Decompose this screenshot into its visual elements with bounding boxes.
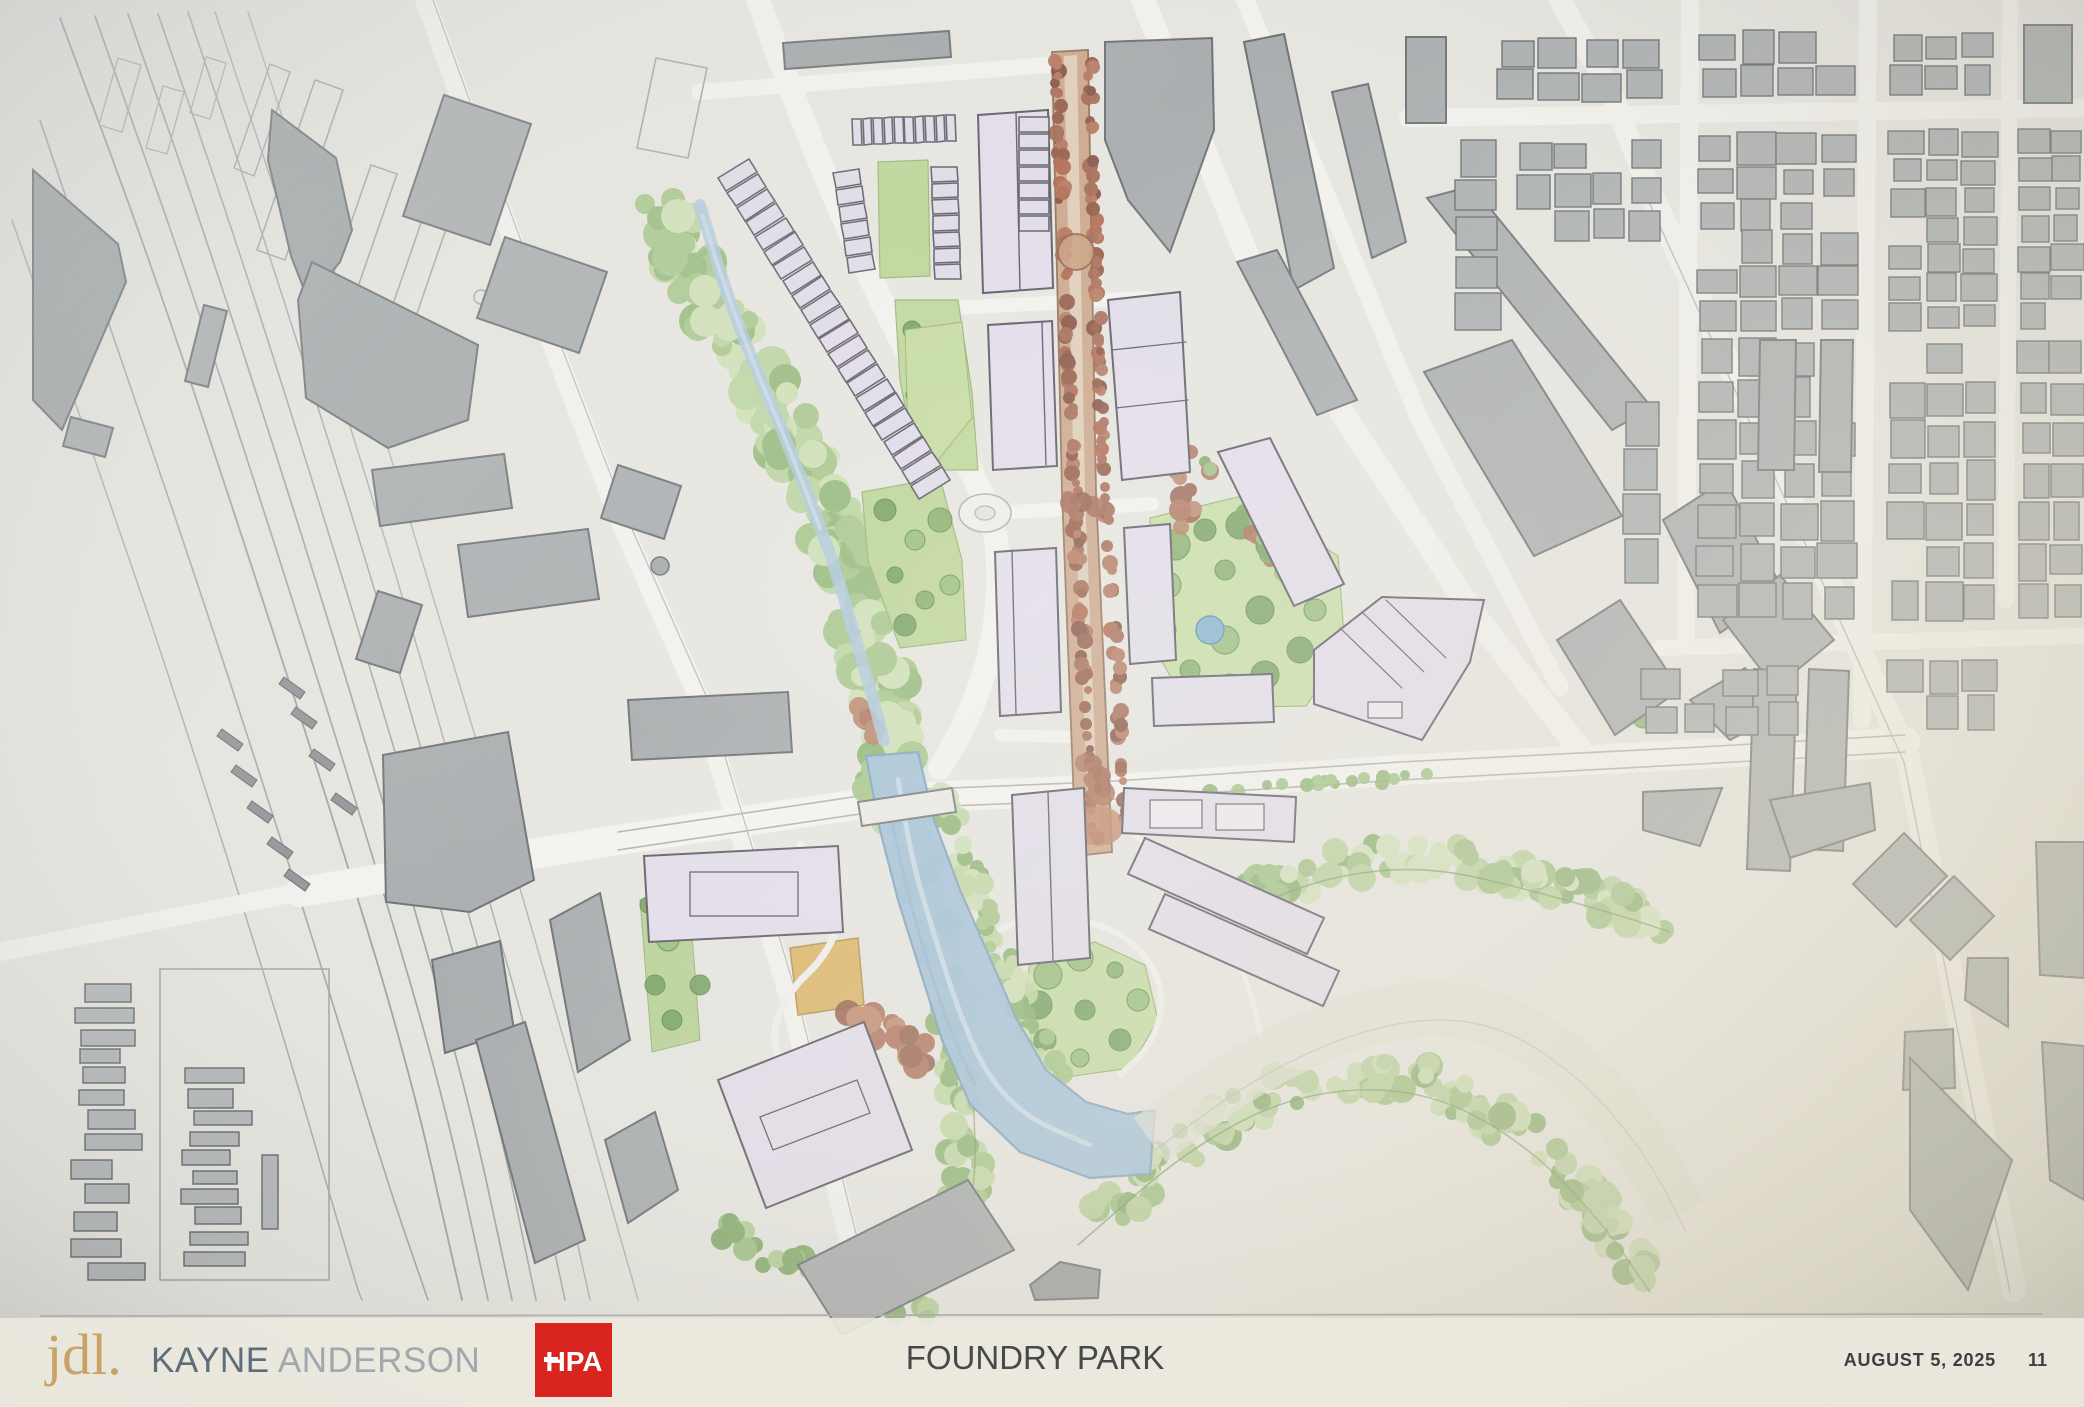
svg-text:11: 11 [2028, 1350, 2047, 1370]
svg-text:jdl.: jdl. [44, 1322, 122, 1387]
svg-text:FOUNDRY PARK: FOUNDRY PARK [906, 1339, 1165, 1376]
svg-text:KAYNE ANDERSON: KAYNE ANDERSON [151, 1341, 480, 1380]
svg-text:AUGUST 5, 2025: AUGUST 5, 2025 [1844, 1350, 1996, 1370]
